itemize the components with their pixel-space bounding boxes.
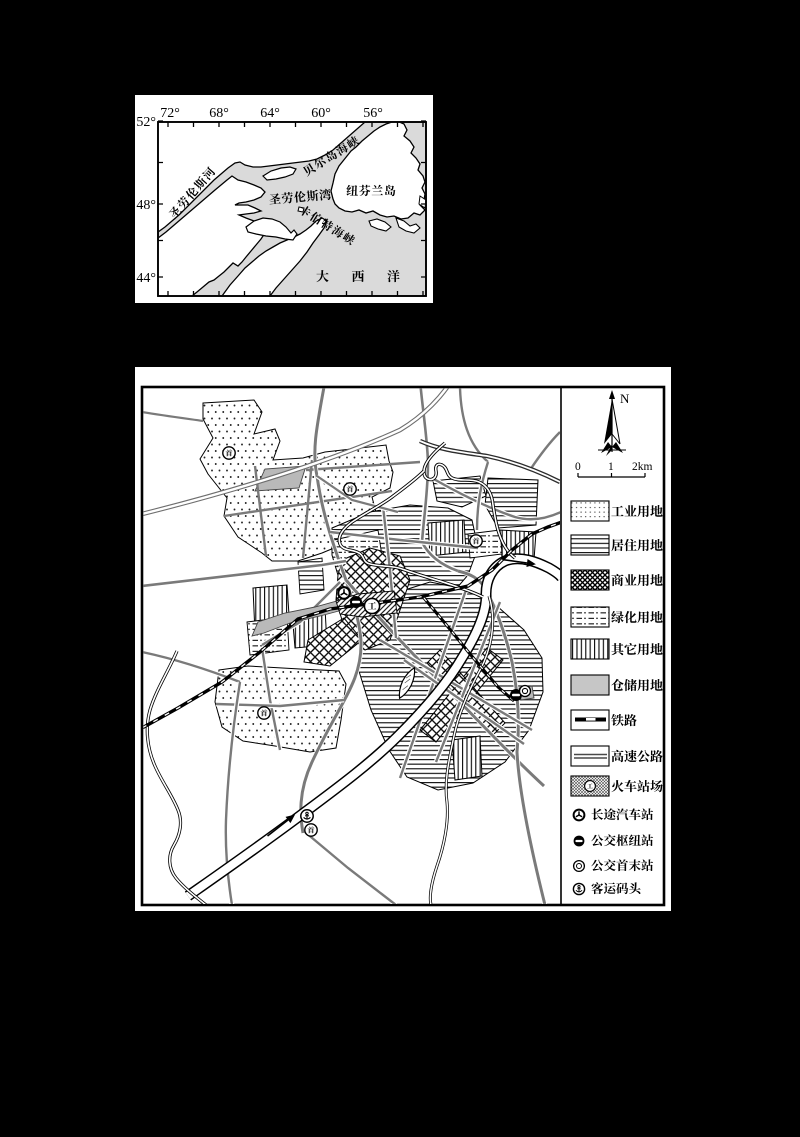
svg-text:48°: 48°	[136, 198, 156, 213]
svg-text:44°: 44°	[136, 271, 156, 286]
svg-text:68°: 68°	[209, 106, 229, 121]
svg-text:2km: 2km	[632, 461, 653, 473]
svg-text:56°: 56°	[363, 106, 383, 121]
svg-text:N: N	[620, 391, 630, 406]
svg-text:52°: 52°	[136, 115, 156, 130]
svg-text:0: 0	[575, 461, 581, 473]
svg-text:1: 1	[608, 461, 614, 473]
svg-text:72°: 72°	[160, 106, 180, 121]
svg-text:64°: 64°	[260, 106, 280, 121]
svg-text:60°: 60°	[311, 106, 331, 121]
